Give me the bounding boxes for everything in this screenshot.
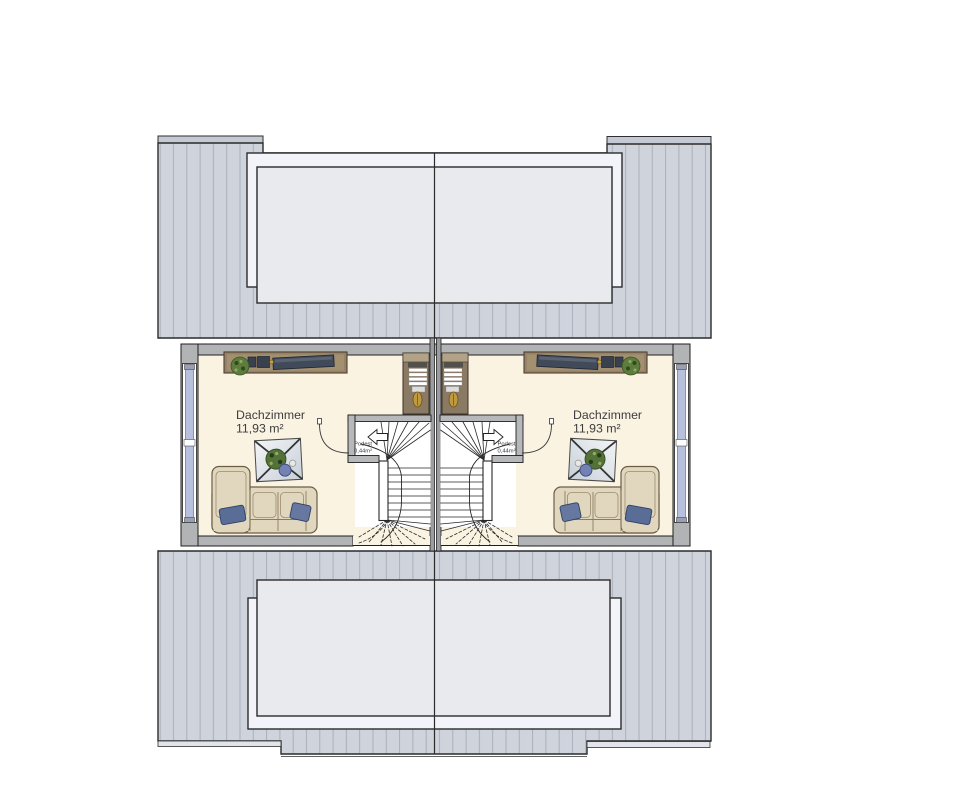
party-wall-leaf-right [437,338,442,551]
floor-plan-page: Dachzimmer 11,93 m² Dachzimmer 11,93 m² … [0,0,956,800]
bottom-wall-right [518,536,690,546]
bottom-wall-left [181,536,353,546]
podest-label-left: Podest [354,442,372,448]
room-label-right: Dachzimmer [573,408,642,422]
room-label-left: Dachzimmer [236,408,305,422]
bottom-fascia-left [158,741,281,747]
podest-area-left: 0,44m² [354,449,372,455]
party-wall-leaf-left [430,338,435,551]
bottom-roof [158,551,711,757]
bottom-fascia-right [587,742,710,748]
top-fascia-right [607,137,711,145]
room-area-right: 11,93 m² [573,422,621,436]
top-roof [158,136,711,338]
room-area-left: 11,93 m² [236,422,284,436]
floor-plan-canvas: Dachzimmer 11,93 m² Dachzimmer 11,93 m² … [0,0,956,800]
podest-area-right: 0,44m² [498,449,516,455]
rooms-band [181,338,690,551]
podest-label-right: Podest [498,442,516,448]
bottom-skylight-pane [257,580,610,716]
